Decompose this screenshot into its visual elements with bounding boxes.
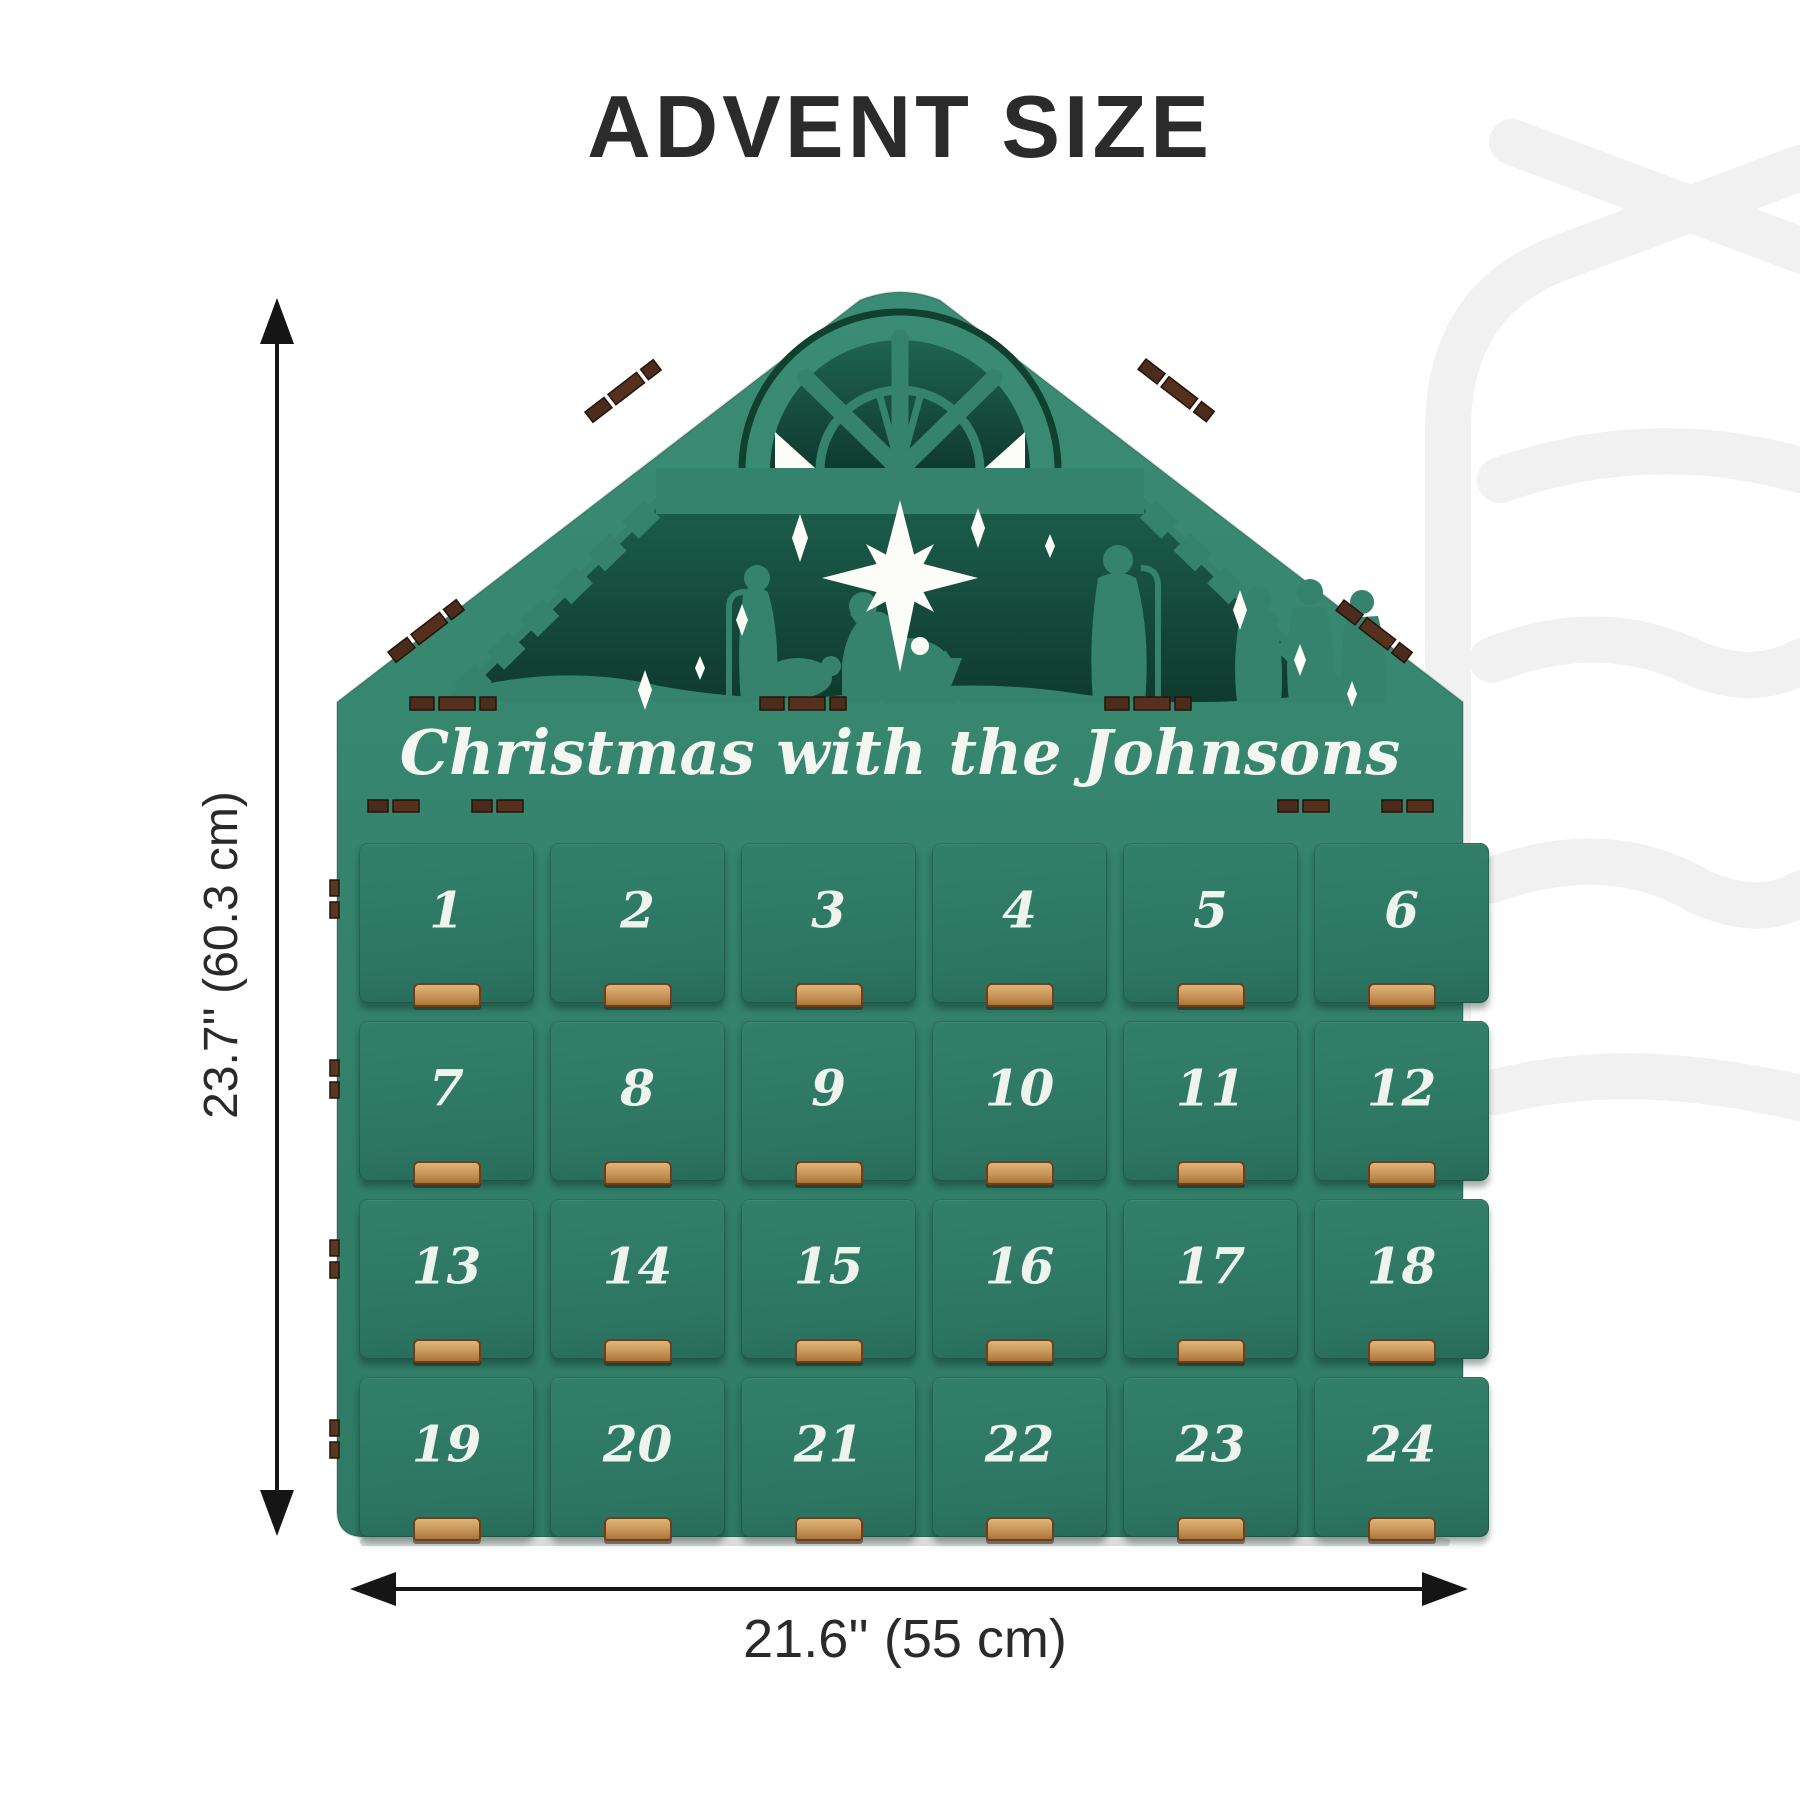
drawer-pull-tab (1368, 1517, 1436, 1541)
drawer-pull-tab (1177, 1161, 1245, 1185)
drawer-number: 21 (741, 1415, 916, 1474)
drawer-number: 6 (1314, 881, 1489, 940)
drawer-19: 19 (359, 1377, 534, 1537)
drawer-4: 4 (932, 843, 1107, 1003)
drawer-number: 24 (1314, 1415, 1489, 1474)
drawer-pull-tab (795, 1339, 863, 1363)
drawer-pull-tab (986, 983, 1054, 1007)
drawer-number: 9 (741, 1059, 916, 1118)
width-dimension-label: 21.6'' (55 cm) (605, 1608, 1205, 1670)
drawer-number: 23 (1123, 1415, 1298, 1474)
drawer-pull-tab (1368, 983, 1436, 1007)
drawer-1: 1 (359, 843, 534, 1003)
drawer-3: 3 (741, 843, 916, 1003)
drawer-grid: 1 2 3 4 5 6 7 8 9 10 11 12 13 14 15 16 1… (359, 843, 1489, 1537)
drawer-number: 2 (550, 881, 725, 940)
drawer-21: 21 (741, 1377, 916, 1537)
height-dimension-arrow (260, 298, 294, 1536)
drawer-10: 10 (932, 1021, 1107, 1181)
drawer-pull-tab (604, 1339, 672, 1363)
drawer-pull-tab (604, 983, 672, 1007)
drawer-pull-tab (1177, 1517, 1245, 1541)
drawer-17: 17 (1123, 1199, 1298, 1359)
drawer-7: 7 (359, 1021, 534, 1181)
drawer-pull-tab (1368, 1339, 1436, 1363)
drawer-pull-tab (413, 1339, 481, 1363)
drawer-6: 6 (1314, 843, 1489, 1003)
height-dimension-label: 23.7'' (60.3 cm) (192, 640, 252, 1270)
drawer-number: 16 (932, 1237, 1107, 1296)
drawer-number: 15 (741, 1237, 916, 1296)
drawer-pull-tab (986, 1161, 1054, 1185)
drawer-22: 22 (932, 1377, 1107, 1537)
drawer-number: 5 (1123, 881, 1298, 940)
drawer-number: 8 (550, 1059, 725, 1118)
drawer-number: 13 (359, 1237, 534, 1296)
drawer-12: 12 (1314, 1021, 1489, 1181)
drawer-20: 20 (550, 1377, 725, 1537)
drawer-8: 8 (550, 1021, 725, 1181)
drawer-number: 1 (359, 881, 534, 940)
drawer-pull-tab (413, 1161, 481, 1185)
drawer-pull-tab (795, 1161, 863, 1185)
advent-size-infographic: ADVENT SIZE (0, 0, 1800, 1800)
drawer-number: 3 (741, 881, 916, 940)
width-dimension-arrow (350, 1572, 1468, 1606)
drawer-pull-tab (1368, 1161, 1436, 1185)
drawer-number: 12 (1314, 1059, 1489, 1118)
drawer-number: 14 (550, 1237, 725, 1296)
personalization-banner: Christmas with the Johnsons (420, 700, 1380, 804)
drawer-14: 14 (550, 1199, 725, 1359)
drawer-5: 5 (1123, 843, 1298, 1003)
drawer-number: 11 (1123, 1059, 1298, 1118)
drawer-18: 18 (1314, 1199, 1489, 1359)
drawer-pull-tab (413, 1517, 481, 1541)
drawer-2: 2 (550, 843, 725, 1003)
brand-watermark (1448, 142, 1800, 1150)
drawer-number: 18 (1314, 1237, 1489, 1296)
drawer-pull-tab (604, 1517, 672, 1541)
drawer-9: 9 (741, 1021, 916, 1181)
board-shadow (360, 1538, 1450, 1546)
drawer-pull-tab (413, 983, 481, 1007)
drawer-number: 4 (932, 881, 1107, 940)
drawer-23: 23 (1123, 1377, 1298, 1537)
drawer-number: 22 (932, 1415, 1107, 1474)
drawer-pull-tab (1177, 1339, 1245, 1363)
drawer-13: 13 (359, 1199, 534, 1359)
drawer-pull-tab (604, 1161, 672, 1185)
drawer-number: 19 (359, 1415, 534, 1474)
drawer-16: 16 (932, 1199, 1107, 1359)
drawer-pull-tab (986, 1339, 1054, 1363)
drawer-number: 7 (359, 1059, 534, 1118)
drawer-number: 20 (550, 1415, 725, 1474)
drawer-11: 11 (1123, 1021, 1298, 1181)
drawer-pull-tab (986, 1517, 1054, 1541)
drawer-24: 24 (1314, 1377, 1489, 1537)
drawer-15: 15 (741, 1199, 916, 1359)
drawer-pull-tab (795, 983, 863, 1007)
drawer-pull-tab (795, 1517, 863, 1541)
drawer-pull-tab (1177, 983, 1245, 1007)
drawer-number: 17 (1123, 1237, 1298, 1296)
drawer-number: 10 (932, 1059, 1107, 1118)
